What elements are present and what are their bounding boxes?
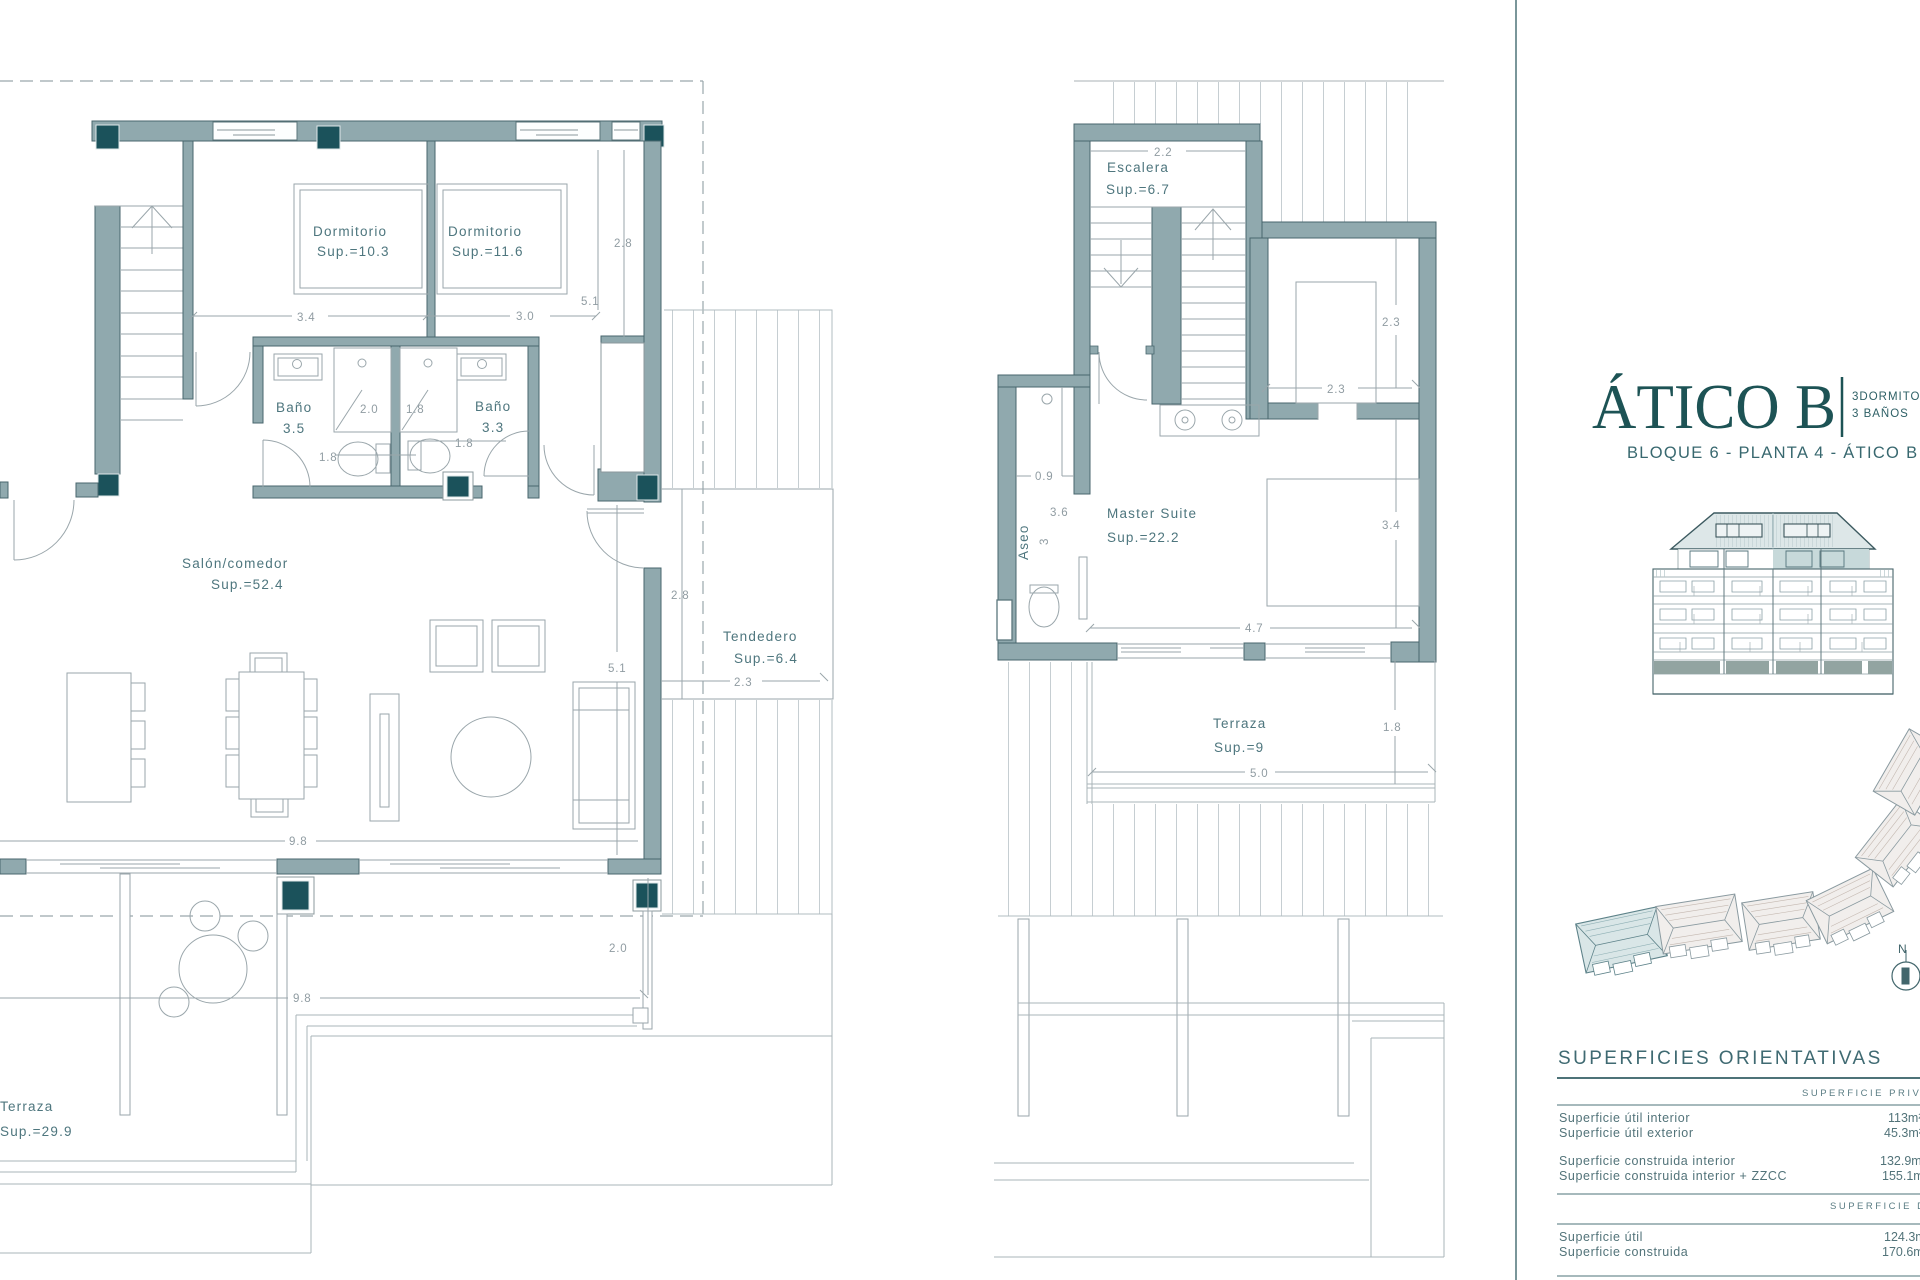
svg-text:Aseo: Aseo [1016,524,1031,560]
svg-text:Sup.=29.9: Sup.=29.9 [0,1124,73,1139]
svg-text:0.9: 0.9 [1035,471,1053,483]
svg-text:Baño: Baño [475,399,511,414]
svg-text:Superficie construida: Superficie construida [1559,1245,1688,1259]
svg-text:BLOQUE 6 - PLANTA 4 - ÁTICO B: BLOQUE 6 - PLANTA 4 - ÁTICO B [1627,443,1918,462]
svg-text:Baño: Baño [276,400,312,415]
svg-text:2.8: 2.8 [671,590,689,602]
svg-text:N: N [1898,942,1907,956]
svg-text:2.8: 2.8 [614,238,632,250]
svg-text:3.0: 3.0 [516,311,534,323]
svg-text:9.8: 9.8 [289,836,307,848]
svg-text:170.6m²: 170.6m² [1882,1245,1920,1259]
svg-text:155.1m²: 155.1m² [1882,1169,1920,1183]
svg-text:Superficie construida interior: Superficie construida interior + ZZCC [1559,1169,1787,1183]
svg-text:Master Suite: Master Suite [1107,506,1197,521]
svg-text:Dormitorio: Dormitorio [313,224,387,239]
svg-text:SUPERFICIE DECLARADA: SUPERFICIE DECLARADA [1830,1201,1920,1212]
svg-text:3: 3 [1039,538,1051,545]
svg-text:Superficie útil exterior: Superficie útil exterior [1559,1126,1694,1140]
svg-text:9.8: 9.8 [293,993,311,1005]
svg-text:Terraza: Terraza [0,1099,53,1114]
svg-text:132.9m²: 132.9m² [1880,1154,1920,1168]
svg-text:3.4: 3.4 [1382,520,1400,532]
svg-text:Sup.=6.7: Sup.=6.7 [1106,182,1170,197]
svg-text:Tendedero: Tendedero [723,629,798,644]
svg-text:Sup.=22.2: Sup.=22.2 [1107,530,1180,545]
svg-text:Salón/comedor: Salón/comedor [182,556,288,571]
svg-text:5.1: 5.1 [581,296,599,308]
svg-text:2.0: 2.0 [609,943,627,955]
svg-text:SUPERFICIE PRIVADA: SUPERFICIE PRIVADA [1802,1088,1920,1099]
svg-text:3.6: 3.6 [1050,507,1068,519]
svg-text:3.3: 3.3 [482,420,504,435]
svg-text:Dormitorio: Dormitorio [448,224,522,239]
svg-text:5.0: 5.0 [1250,768,1268,780]
svg-text:1.8: 1.8 [455,438,473,450]
svg-text:Escalera: Escalera [1107,160,1169,175]
svg-text:1.8: 1.8 [406,404,424,416]
svg-text:2.3: 2.3 [734,677,752,689]
svg-text:2.3: 2.3 [1382,317,1400,329]
svg-text:2.3: 2.3 [1327,384,1345,396]
svg-text:Terraza: Terraza [1213,716,1266,731]
svg-text:Sup.=9: Sup.=9 [1214,740,1264,755]
svg-text:Superficie útil interior: Superficie útil interior [1559,1111,1690,1125]
svg-text:3 BAÑOS: 3 BAÑOS [1852,407,1909,420]
svg-text:45.3m²: 45.3m² [1884,1126,1920,1140]
svg-text:ÁTICO B: ÁTICO B [1592,371,1836,442]
svg-text:Superficie útil: Superficie útil [1559,1230,1643,1244]
svg-text:1.8: 1.8 [1383,722,1401,734]
svg-text:2.2: 2.2 [1154,147,1172,159]
svg-text:Sup.=11.6: Sup.=11.6 [452,244,524,259]
svg-text:113m²: 113m² [1888,1111,1920,1125]
svg-text:Superficie construida interior: Superficie construida interior [1559,1154,1735,1168]
svg-text:1.8: 1.8 [319,452,337,464]
svg-text:3DORMITORIOS: 3DORMITORIOS [1852,391,1920,403]
svg-text:124.3m²: 124.3m² [1884,1230,1920,1244]
svg-text:SUPERFICIES ORIENTATIVAS: SUPERFICIES ORIENTATIVAS [1558,1048,1883,1069]
svg-text:3.4: 3.4 [297,312,315,324]
svg-text:2.0: 2.0 [360,404,378,416]
svg-text:3.5: 3.5 [283,421,305,436]
svg-text:Sup.=52.4: Sup.=52.4 [211,577,284,592]
svg-text:Sup.=6.4: Sup.=6.4 [734,651,798,666]
svg-text:5.1: 5.1 [608,663,626,675]
svg-text:4.7: 4.7 [1245,623,1263,635]
svg-text:Sup.=10.3: Sup.=10.3 [317,244,390,259]
